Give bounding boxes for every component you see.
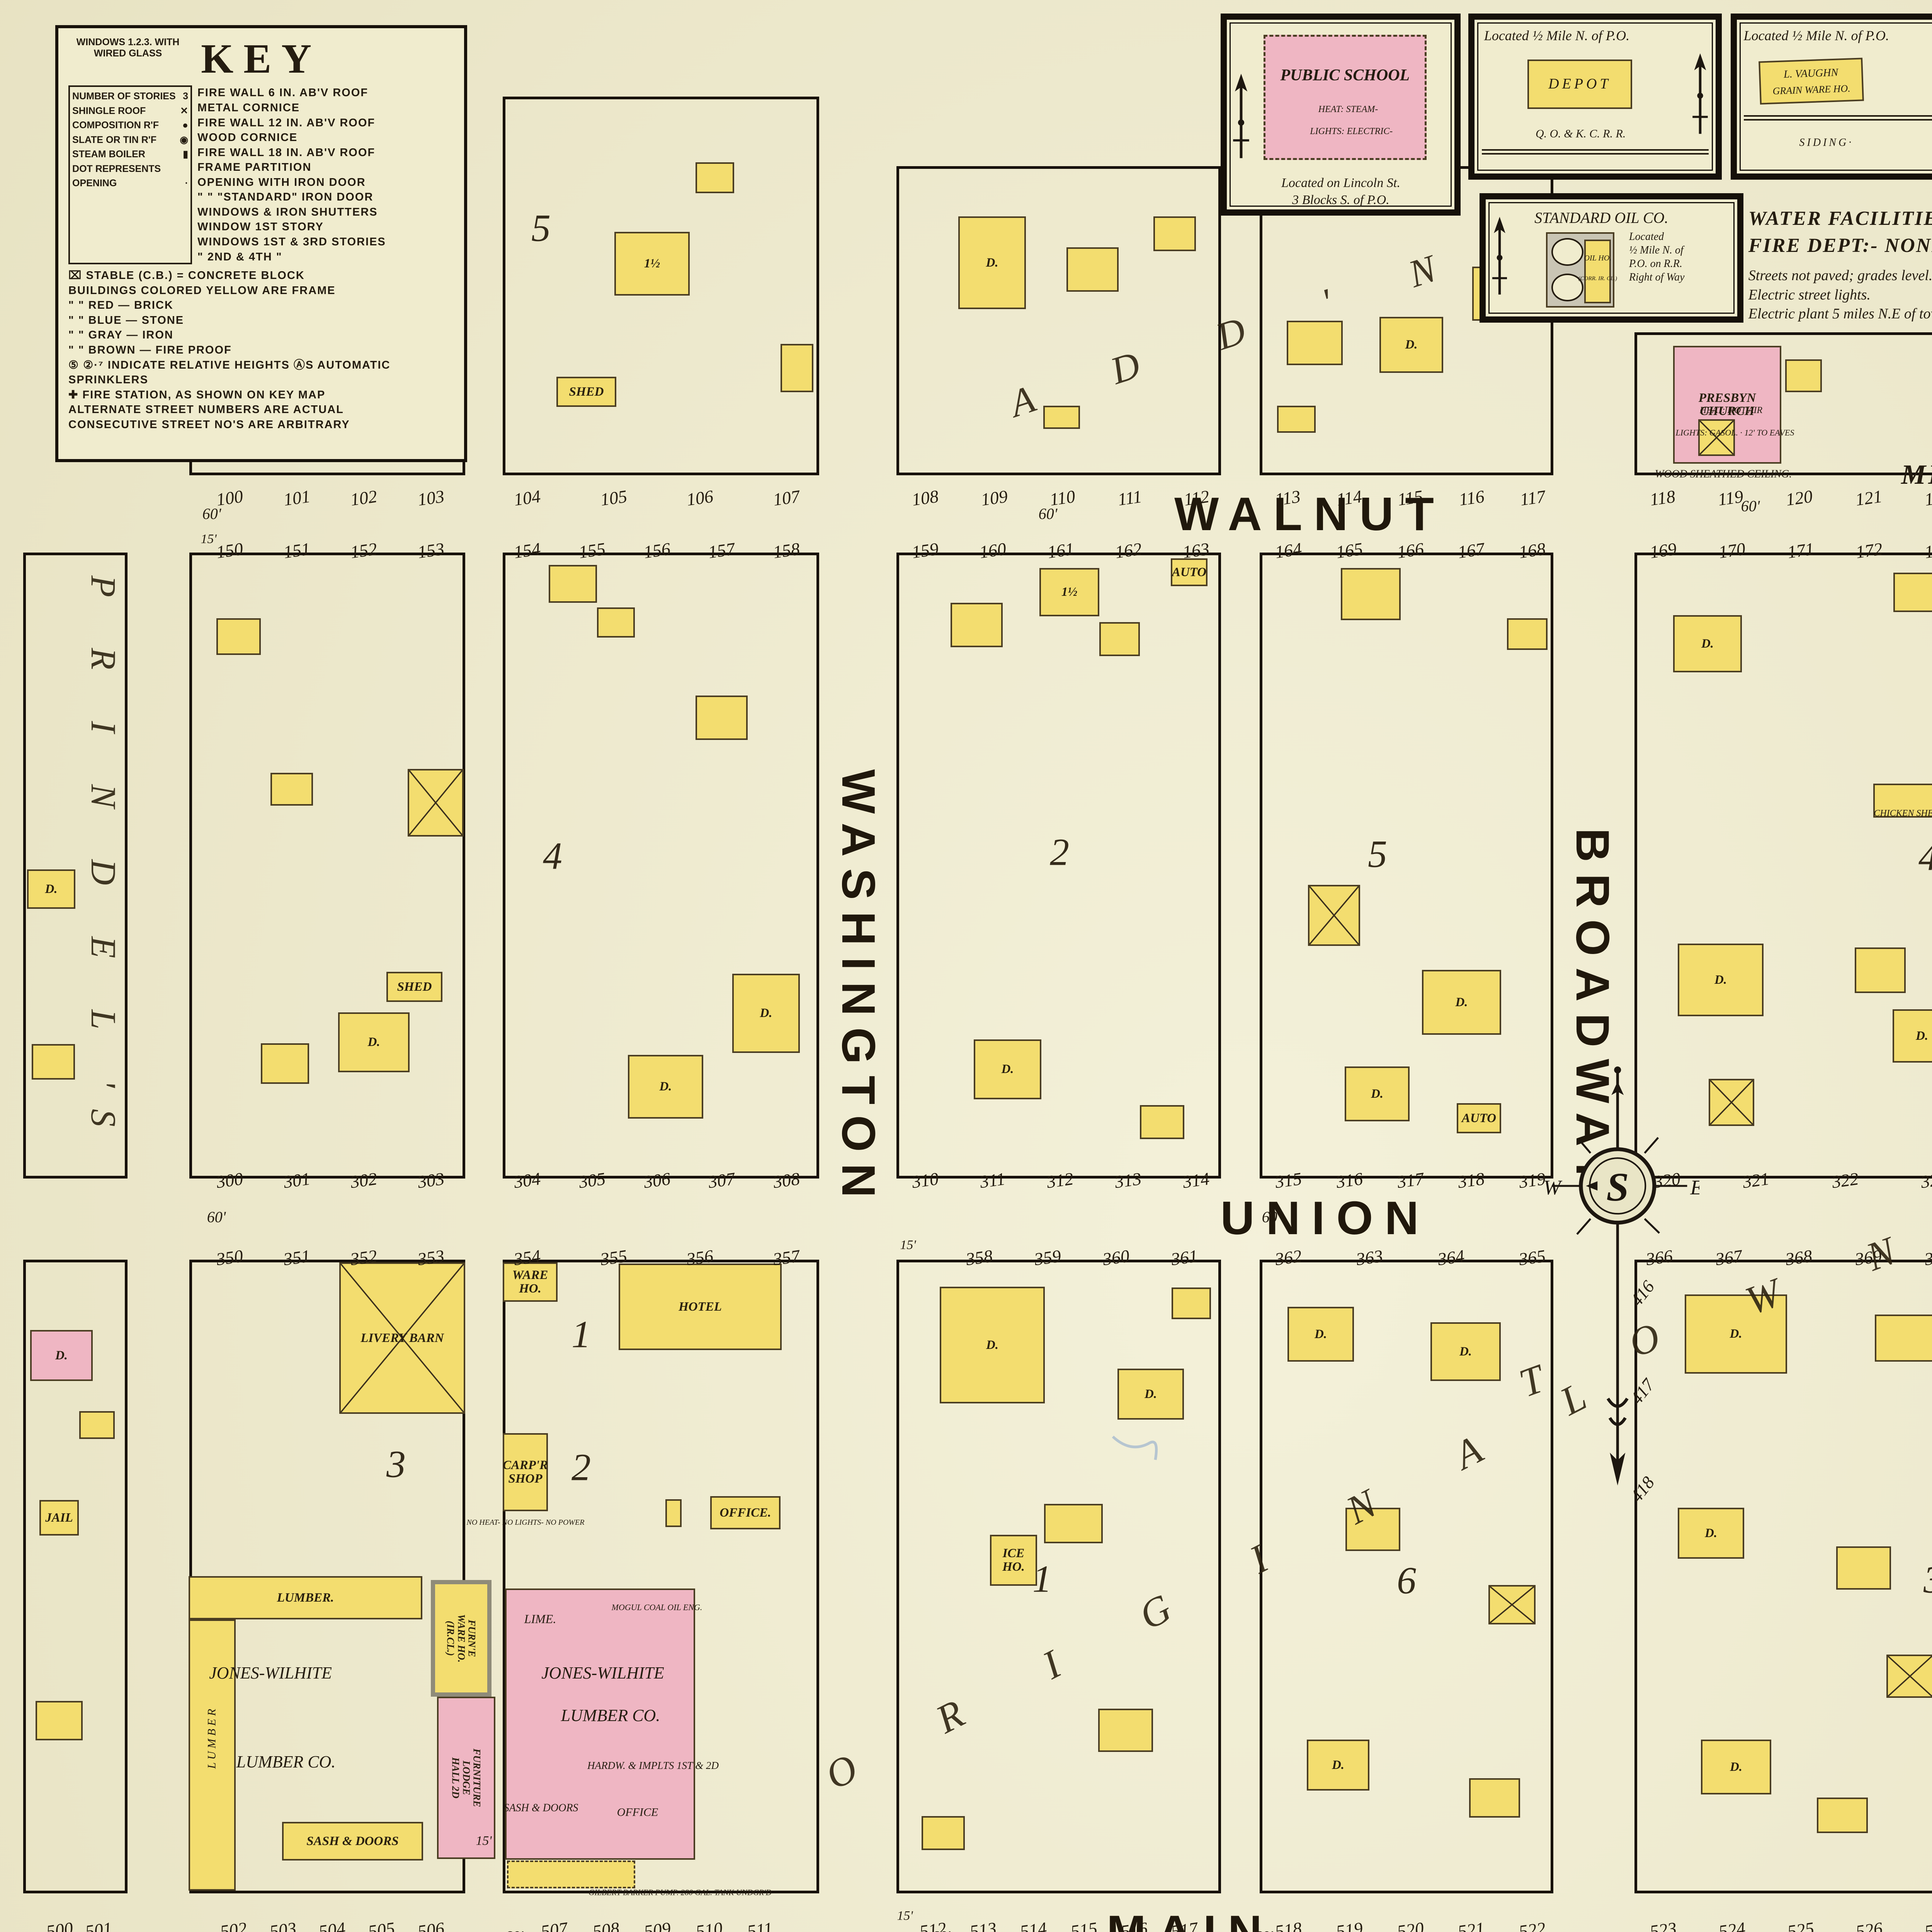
lot-number: 509 bbox=[643, 1918, 672, 1932]
lot-number: 157 bbox=[707, 538, 736, 563]
lot-number: 360 bbox=[1101, 1245, 1131, 1270]
building-label: D. bbox=[734, 975, 798, 1051]
facilities-line: Streets not paved; grades level. bbox=[1748, 266, 1932, 285]
key-symbol-row: SHINGLE ROOF✕ bbox=[72, 104, 188, 119]
building: D. bbox=[1701, 1740, 1771, 1794]
key-symbol-row: DOT REPRESENTS OPENING· bbox=[72, 162, 188, 191]
railroad-track bbox=[1482, 149, 1709, 155]
building: 1½ bbox=[614, 232, 690, 296]
lot-number: 520 bbox=[1396, 1918, 1425, 1932]
siding-label: SIDING· bbox=[1799, 137, 1854, 149]
lot-number: 154 bbox=[512, 538, 542, 563]
map-annotation: WOOD SHEATHED CEILING. bbox=[1655, 469, 1792, 481]
stable-cross-icon bbox=[409, 770, 462, 835]
building-label: D. bbox=[960, 218, 1024, 308]
building-label: AUTO bbox=[1172, 560, 1206, 585]
facilities-headline: FIRE DEPT:- NONE. bbox=[1748, 232, 1932, 259]
surveyed-by-line2: MISSOURI INSPECTION BUREAU bbox=[1871, 459, 1932, 491]
map-annotation: 15' bbox=[900, 1238, 916, 1252]
building bbox=[549, 565, 597, 603]
lot-number: 101 bbox=[282, 486, 311, 511]
public-school-inset: PUBLIC SCHOOL HEAT: STEAM- LIGHTS: ELECT… bbox=[1221, 14, 1461, 216]
building-label: D. bbox=[1894, 1011, 1932, 1061]
street-label-walnut: WALNUT bbox=[1174, 487, 1446, 541]
lot-number: 507 bbox=[539, 1918, 569, 1932]
lot-number: 107 bbox=[772, 486, 801, 511]
key-legend-line: " 2ND & 4TH " bbox=[197, 250, 386, 265]
building bbox=[1099, 622, 1140, 656]
lot-number: 322 bbox=[1830, 1168, 1860, 1193]
map-annotation: JONES-WILHITE bbox=[541, 1664, 664, 1682]
block-number: 4 bbox=[543, 834, 562, 878]
building: D. bbox=[1422, 970, 1501, 1035]
map-annotation: 15' bbox=[476, 1833, 492, 1848]
building-label: D. bbox=[975, 1041, 1040, 1098]
building: D. bbox=[628, 1055, 703, 1119]
map-annotation: 15' bbox=[897, 1908, 913, 1923]
building: D. bbox=[1678, 944, 1764, 1016]
building-label: ICE HO. bbox=[992, 1536, 1036, 1584]
north-arrow-icon bbox=[1491, 217, 1508, 299]
map-annotation: GILBERT BARKER PUMP. 280 GAL. TANK UNDGR… bbox=[588, 1888, 772, 1897]
lot-number: 352 bbox=[349, 1245, 379, 1270]
lot-number: 166 bbox=[1396, 538, 1425, 563]
lot-number: 315 bbox=[1274, 1168, 1303, 1193]
map-annotation: OFFICE bbox=[617, 1806, 658, 1819]
building-label: D. bbox=[1432, 1324, 1499, 1379]
lot-numbers: 358359360361 bbox=[966, 1247, 1198, 1269]
lot-number: 311 bbox=[979, 1168, 1007, 1194]
key-symbol-row: SLATE OR TIN R'F◉ bbox=[72, 133, 188, 148]
building: D. bbox=[1117, 1369, 1184, 1420]
lot-number: 104 bbox=[512, 486, 542, 511]
key-legend-line: WINDOWS 1ST & 3RD STORIES bbox=[197, 235, 386, 250]
map-annotation: HARDW. & IMPLTS 1ST & 2D bbox=[587, 1760, 719, 1772]
lot-number: 156 bbox=[642, 538, 672, 563]
building bbox=[696, 162, 734, 193]
building-label: D. bbox=[1423, 971, 1500, 1033]
building-label: D. bbox=[629, 1056, 702, 1117]
building bbox=[1469, 1778, 1520, 1818]
public-school-building: PUBLIC SCHOOL HEAT: STEAM- LIGHTS: ELECT… bbox=[1264, 35, 1427, 160]
map-annotation: LIME. bbox=[524, 1612, 556, 1626]
building: SHED bbox=[386, 972, 442, 1002]
building-label: D. bbox=[32, 1332, 91, 1379]
lot-number: 300 bbox=[215, 1168, 244, 1193]
building-label: D. bbox=[1702, 1741, 1770, 1793]
compass-rose: S W E bbox=[1536, 1058, 1699, 1489]
lot-numbers: 500501 bbox=[46, 1920, 112, 1932]
lot-number: 513 bbox=[969, 1918, 998, 1932]
building bbox=[270, 773, 313, 806]
building-label: CARP'R SHOP bbox=[504, 1435, 546, 1510]
surveyed-by-line1: SURVEYED BY bbox=[1871, 434, 1932, 459]
building bbox=[507, 1861, 635, 1888]
key-symbol-row: STEAM BOILER▮ bbox=[72, 147, 188, 162]
lot-number: 120 bbox=[1785, 486, 1814, 511]
building-label: JAIL bbox=[41, 1502, 77, 1534]
stable-cross-icon bbox=[1490, 1587, 1534, 1623]
key-symbol-row: COMPOSITION R'F● bbox=[72, 118, 188, 133]
lot-number: 169 bbox=[1648, 538, 1678, 563]
school-location-line2: 3 Blocks S. of P.O. bbox=[1227, 193, 1454, 207]
building-label: SHED bbox=[558, 378, 615, 405]
lot-number: 117 bbox=[1519, 486, 1547, 511]
building-label: D. bbox=[1119, 1370, 1182, 1418]
key-legend-line: CONSECUTIVE STREET NO'S ARE ARBITRARY bbox=[68, 417, 454, 432]
map-annotation: HEAT: HOT AIR bbox=[1700, 405, 1762, 415]
lot-numbers: 118119120121122 bbox=[1650, 488, 1932, 509]
building: D. bbox=[27, 869, 75, 909]
building bbox=[1875, 1315, 1932, 1362]
compass-west: W bbox=[1544, 1176, 1563, 1199]
building bbox=[1308, 885, 1360, 946]
lot-number: 116 bbox=[1458, 486, 1486, 511]
lot-number: 159 bbox=[910, 538, 940, 563]
lot-numbers: 507508509510511 bbox=[541, 1920, 773, 1932]
lot-number: 356 bbox=[685, 1245, 715, 1270]
building: D. bbox=[1307, 1740, 1369, 1791]
building-label: LUMBER. bbox=[190, 1578, 421, 1618]
building: CARP'R SHOP bbox=[503, 1433, 548, 1511]
building bbox=[1488, 1585, 1536, 1624]
street-label-main: MAIN bbox=[1107, 1905, 1274, 1932]
lot-number: 521 bbox=[1457, 1918, 1486, 1932]
depot-location: Located ½ Mile N. of P.O. bbox=[1484, 27, 1629, 44]
building: FURN'E WARE HO. (IR.CL.) bbox=[431, 1580, 492, 1697]
key-legend-list: FIRE WALL 6 IN. AB'V ROOFMETAL CORNICEFI… bbox=[197, 85, 386, 264]
lot-number: 350 bbox=[215, 1245, 244, 1270]
building: AUTO bbox=[1457, 1103, 1501, 1133]
key-legend-line: METAL CORNICE bbox=[197, 100, 386, 116]
map-annotation: LUMBER CO. bbox=[561, 1706, 660, 1725]
block-number: 4 bbox=[1918, 835, 1932, 879]
building: SHED bbox=[556, 377, 616, 407]
building bbox=[1044, 1504, 1103, 1543]
key-legend-line: FRAME PARTITION bbox=[197, 160, 386, 175]
key-legend-line: " " RED — BRICK bbox=[68, 298, 454, 313]
key-symbol-table: NUMBER OF STORIES3SHINGLE ROOF✕COMPOSITI… bbox=[68, 85, 192, 264]
lot-number: 302 bbox=[349, 1168, 379, 1193]
map-annotation: 60' bbox=[1039, 505, 1058, 522]
north-arrow-icon bbox=[1232, 69, 1250, 167]
key-legend-line: ✚ FIRE STATION, AS SHOWN ON KEY MAP bbox=[68, 388, 454, 403]
lot-number: 503 bbox=[268, 1918, 298, 1932]
building bbox=[1098, 1709, 1153, 1752]
building-label: D. bbox=[340, 1014, 408, 1071]
lot-number: 301 bbox=[282, 1168, 311, 1193]
public-school-lights: LIGHTS: ELECTRIC- bbox=[1310, 126, 1393, 136]
building: D. bbox=[958, 216, 1026, 309]
north-arrow-icon bbox=[1692, 53, 1709, 138]
block-number: 1 bbox=[1032, 1557, 1052, 1601]
stable-cross-icon bbox=[1310, 886, 1359, 944]
lot-number: 502 bbox=[219, 1918, 248, 1932]
lot-number: 523 bbox=[1648, 1918, 1678, 1932]
building bbox=[1153, 216, 1196, 251]
lot-number: 155 bbox=[577, 538, 607, 563]
building bbox=[1066, 247, 1119, 292]
lot-number: 363 bbox=[1355, 1245, 1384, 1270]
building-label: 1½ bbox=[1041, 570, 1098, 615]
depot-inset: Located ½ Mile N. of P.O. DEPOT Q. O. & … bbox=[1468, 14, 1722, 180]
lot-number: 303 bbox=[416, 1168, 446, 1193]
building bbox=[1886, 1655, 1932, 1698]
lot-number: 118 bbox=[1648, 486, 1677, 511]
standard-oil-label: STANDARD OIL CO. bbox=[1534, 209, 1668, 226]
building: D. bbox=[1893, 1009, 1932, 1063]
lot-numbers: 108109110111112 bbox=[912, 488, 1209, 509]
oil-location-line: Located bbox=[1629, 230, 1730, 243]
lot-numbers: 164165166167168 bbox=[1275, 540, 1546, 562]
lot-number: 357 bbox=[772, 1245, 801, 1270]
lot-numbers: 154155156157158 bbox=[514, 540, 800, 562]
building bbox=[1817, 1798, 1868, 1833]
lot-numbers: 169170171172173 bbox=[1650, 540, 1932, 562]
building: D. bbox=[1345, 1066, 1410, 1121]
scale-of-feet: Scale of Feet. 5040302010050100150 Copyr… bbox=[1889, 1912, 1932, 1932]
building bbox=[665, 1499, 682, 1527]
compass-east: E bbox=[1690, 1176, 1699, 1199]
lot-number: 501 bbox=[84, 1918, 113, 1932]
oil-tank-house: OIL HO. (CORR. IR. CL.) bbox=[1546, 232, 1614, 308]
lot-number: 109 bbox=[980, 486, 1009, 511]
lot-number: 510 bbox=[694, 1918, 724, 1932]
building: D. bbox=[1673, 615, 1742, 672]
stable-cross-icon bbox=[1700, 421, 1733, 454]
sanborn-map-sheet: WINDOWS 1.2.3. WITH WIRED GLASS KEY NUMB… bbox=[0, 0, 1932, 1932]
building bbox=[1172, 1287, 1211, 1319]
building: ICE HO. bbox=[990, 1535, 1037, 1586]
building: 1½ bbox=[1039, 568, 1099, 616]
lot-number: 524 bbox=[1717, 1918, 1747, 1932]
lot-number: 119 bbox=[1716, 486, 1745, 511]
building: OFFICE. bbox=[710, 1496, 781, 1529]
building: JAIL bbox=[39, 1500, 79, 1536]
lot-number: 165 bbox=[1335, 538, 1364, 563]
block-number: 5 bbox=[531, 206, 551, 250]
building bbox=[1341, 568, 1401, 620]
building-label: SASH & DOORS bbox=[284, 1823, 422, 1859]
building-label: AUTO bbox=[1458, 1105, 1500, 1132]
building-label: D. bbox=[1679, 945, 1762, 1015]
lot-number: 103 bbox=[416, 486, 446, 511]
grain-name2: GRAIN WARE HO. bbox=[1772, 83, 1850, 97]
building-label: D. bbox=[1308, 1741, 1368, 1789]
lot-number: 163 bbox=[1181, 538, 1211, 563]
building-label: FURN'E WARE HO. (IR.CL.) bbox=[407, 1612, 515, 1664]
key-legend-line: OPENING WITH IRON DOOR bbox=[197, 175, 386, 190]
map-annotation: 60' bbox=[1741, 498, 1760, 515]
lot-number: 505 bbox=[367, 1918, 396, 1932]
lot-number: 307 bbox=[707, 1168, 736, 1193]
lot-number: 525 bbox=[1786, 1918, 1815, 1932]
lot-number: 168 bbox=[1517, 538, 1547, 563]
key-legend-line: ⑤ ②·⁷ INDICATE RELATIVE HEIGHTS ⒶS AUTOM… bbox=[68, 358, 454, 388]
lot-number: 312 bbox=[1045, 1168, 1075, 1193]
siding-track bbox=[1744, 115, 1932, 121]
building bbox=[1507, 618, 1548, 650]
map-annotation: NO HEAT- NO LIGHTS- NO POWER bbox=[467, 1518, 585, 1527]
oil-house-cl: (CORR. IR. CL.) bbox=[1578, 276, 1617, 282]
key-wired-glass-note: WINDOWS 1.2.3. WITH WIRED GLASS bbox=[70, 37, 186, 59]
building-label: D. bbox=[29, 871, 74, 907]
building: SASH & DOORS bbox=[282, 1822, 423, 1861]
lot-number: 353 bbox=[416, 1245, 446, 1270]
oil-location-line: Right of Way bbox=[1629, 270, 1730, 284]
street-label-union: UNION bbox=[1220, 1191, 1430, 1245]
building bbox=[1698, 419, 1735, 456]
lot-number: 161 bbox=[1046, 538, 1075, 563]
lot-number: 323 bbox=[1919, 1168, 1932, 1193]
oil-location-line: ½ Mile N. of bbox=[1629, 243, 1730, 257]
building: LIVERY BARN bbox=[339, 1262, 465, 1414]
lot-number: 514 bbox=[1019, 1918, 1048, 1932]
building bbox=[1140, 1105, 1184, 1139]
lot-number: 351 bbox=[282, 1245, 311, 1270]
building: D. bbox=[732, 974, 800, 1053]
building-label: D. bbox=[1679, 1509, 1743, 1557]
key-legend-line: FIRE WALL 6 IN. AB'V ROOF bbox=[197, 85, 386, 100]
oil-tank-icon bbox=[1551, 238, 1583, 266]
key-legend-line: " " BLUE — STONE bbox=[68, 313, 454, 328]
map-annotation: SASH & DOORS bbox=[504, 1803, 578, 1815]
facilities-line: Electric plant 5 miles N.E of town. bbox=[1748, 304, 1932, 323]
oil-location-lines: Located½ Mile N. ofP.O. on R.R.Right of … bbox=[1629, 230, 1730, 284]
building-label: 1½ bbox=[616, 233, 688, 294]
lot-number: 314 bbox=[1181, 1168, 1211, 1193]
lot-numbers: 104105106107 bbox=[514, 488, 800, 509]
lot-number: 173 bbox=[1923, 538, 1932, 563]
lot-number: 519 bbox=[1335, 1918, 1364, 1932]
map-annotation: MOGUL COAL OIL ENG. bbox=[612, 1603, 702, 1612]
oil-location-line: P.O. on R.R. bbox=[1629, 257, 1730, 270]
surveyed-by: SURVEYED BY MISSOURI INSPECTION BUREAU bbox=[1871, 434, 1932, 491]
lot-number: 106 bbox=[685, 486, 715, 511]
lot-numbers: 310311312313314 bbox=[912, 1170, 1209, 1192]
lot-number: 358 bbox=[964, 1245, 994, 1270]
block-number: 5 bbox=[1368, 832, 1387, 876]
building bbox=[1785, 359, 1822, 392]
lot-number: 317 bbox=[1396, 1168, 1425, 1193]
stable-cross-icon bbox=[1710, 1080, 1753, 1124]
building: D. bbox=[30, 1330, 93, 1381]
map-annotation: LIGHTS: GASOL. · 12' TO EAVES bbox=[1676, 428, 1794, 437]
lot-number: 170 bbox=[1717, 538, 1747, 563]
lot-numbers: 315316317318319 bbox=[1275, 1170, 1546, 1192]
grain-location: Located ½ Mile N. of P.O. bbox=[1744, 27, 1889, 44]
key-legend-line: " " BROWN — FIRE PROOF bbox=[68, 343, 454, 358]
lot-number: 526 bbox=[1855, 1918, 1884, 1932]
block-number: 3 bbox=[1923, 1558, 1932, 1602]
grain-warehouse-building: L. VAUGHN GRAIN WARE HO. bbox=[1759, 58, 1864, 105]
lot-number: 167 bbox=[1457, 538, 1486, 563]
depot-building: DEPOT bbox=[1527, 60, 1632, 109]
lot-number: 164 bbox=[1274, 538, 1303, 563]
building bbox=[1836, 1546, 1891, 1590]
lot-number: 105 bbox=[599, 486, 628, 511]
lot-number: 508 bbox=[591, 1918, 621, 1932]
lot-number: 151 bbox=[282, 538, 311, 563]
lot-number: 318 bbox=[1457, 1168, 1486, 1193]
map-annotation: 60' bbox=[505, 1928, 524, 1932]
lot-numbers: 502503504505506 bbox=[220, 1920, 444, 1932]
building: HOTEL bbox=[619, 1264, 782, 1350]
building bbox=[261, 1043, 309, 1084]
lot-numbers: 300301302303 bbox=[216, 1170, 444, 1192]
compass-monogram: S bbox=[1606, 1164, 1629, 1209]
key-legend-line: ⌧ STABLE (C.B.) = CONCRETE BLOCK bbox=[68, 268, 454, 283]
key-legend-line: WOOD CORNICE bbox=[197, 130, 386, 145]
block-number: 1 bbox=[571, 1312, 591, 1357]
lot-number: 158 bbox=[772, 538, 801, 563]
lot-number: 504 bbox=[318, 1918, 347, 1932]
block-number: 6 bbox=[1397, 1558, 1416, 1603]
lot-number: 153 bbox=[416, 538, 446, 563]
building bbox=[1855, 947, 1906, 993]
lot-numbers: 100101102103 bbox=[216, 488, 444, 509]
depot-label: DEPOT bbox=[1548, 76, 1611, 92]
building-label: D. bbox=[1346, 1068, 1408, 1120]
lot-number: 522 bbox=[1517, 1918, 1547, 1932]
lot-number: 362 bbox=[1274, 1245, 1303, 1270]
oil-house-label: OIL HO. bbox=[1584, 254, 1611, 262]
oil-house-building: OIL HO. (CORR. IR. CL.) bbox=[1584, 240, 1611, 304]
key-legend-line: FIRE WALL 18 IN. AB'V ROOF bbox=[197, 145, 386, 160]
building bbox=[922, 1816, 965, 1850]
building bbox=[36, 1701, 83, 1740]
lot-number: 306 bbox=[642, 1168, 672, 1193]
building: LUMBER. bbox=[189, 1576, 422, 1619]
building-label: D. bbox=[941, 1288, 1043, 1402]
lot-number: 108 bbox=[910, 486, 940, 511]
lot-number: 354 bbox=[512, 1245, 542, 1270]
lot-number: 316 bbox=[1335, 1168, 1364, 1193]
lot-numbers: 350351352353 bbox=[216, 1247, 444, 1269]
standard-oil-inset: STANDARD OIL CO. OIL HO. (CORR. IR. CL.)… bbox=[1480, 193, 1743, 323]
building-label: HOTEL bbox=[620, 1265, 780, 1349]
grain-warehouse-inset: Located ½ Mile N. of P.O. L. VAUGHN GRAI… bbox=[1731, 14, 1932, 180]
lot-number: 305 bbox=[577, 1168, 607, 1193]
building bbox=[216, 618, 261, 655]
key-legend-line: " " GRAY — IRON bbox=[68, 328, 454, 343]
building-label: LIVERY BARN bbox=[341, 1264, 464, 1412]
lot-number: 511 bbox=[746, 1918, 774, 1932]
lot-numbers: 362363364365 bbox=[1275, 1247, 1546, 1269]
map-annotation: L U M B E R bbox=[205, 1709, 218, 1769]
building: D. bbox=[1379, 317, 1443, 373]
block-number: 3 bbox=[386, 1442, 406, 1486]
lot-number: 364 bbox=[1436, 1245, 1466, 1270]
lot-number: 308 bbox=[772, 1168, 801, 1193]
building bbox=[408, 769, 464, 837]
lot-number: 515 bbox=[1069, 1918, 1099, 1932]
lot-number: 518 bbox=[1274, 1918, 1303, 1932]
building-label: WARE HO. bbox=[504, 1264, 556, 1300]
key-legend-line: WINDOWS & IRON SHUTTERS bbox=[197, 205, 386, 220]
building: D. bbox=[940, 1287, 1045, 1403]
building-label: D. bbox=[1675, 617, 1740, 671]
building: D. bbox=[1678, 1508, 1744, 1559]
facilities-line: Electric street lights. bbox=[1748, 286, 1932, 304]
lot-number: 506 bbox=[416, 1918, 446, 1932]
lot-numbers: 150151152153 bbox=[216, 540, 444, 562]
lot-number: 361 bbox=[1170, 1245, 1199, 1270]
building bbox=[1893, 573, 1932, 612]
building-label: OFFICE. bbox=[712, 1498, 779, 1528]
lot-numbers: 304305306307308 bbox=[514, 1170, 800, 1192]
grain-name1: L. VAUGHN bbox=[1784, 67, 1838, 81]
